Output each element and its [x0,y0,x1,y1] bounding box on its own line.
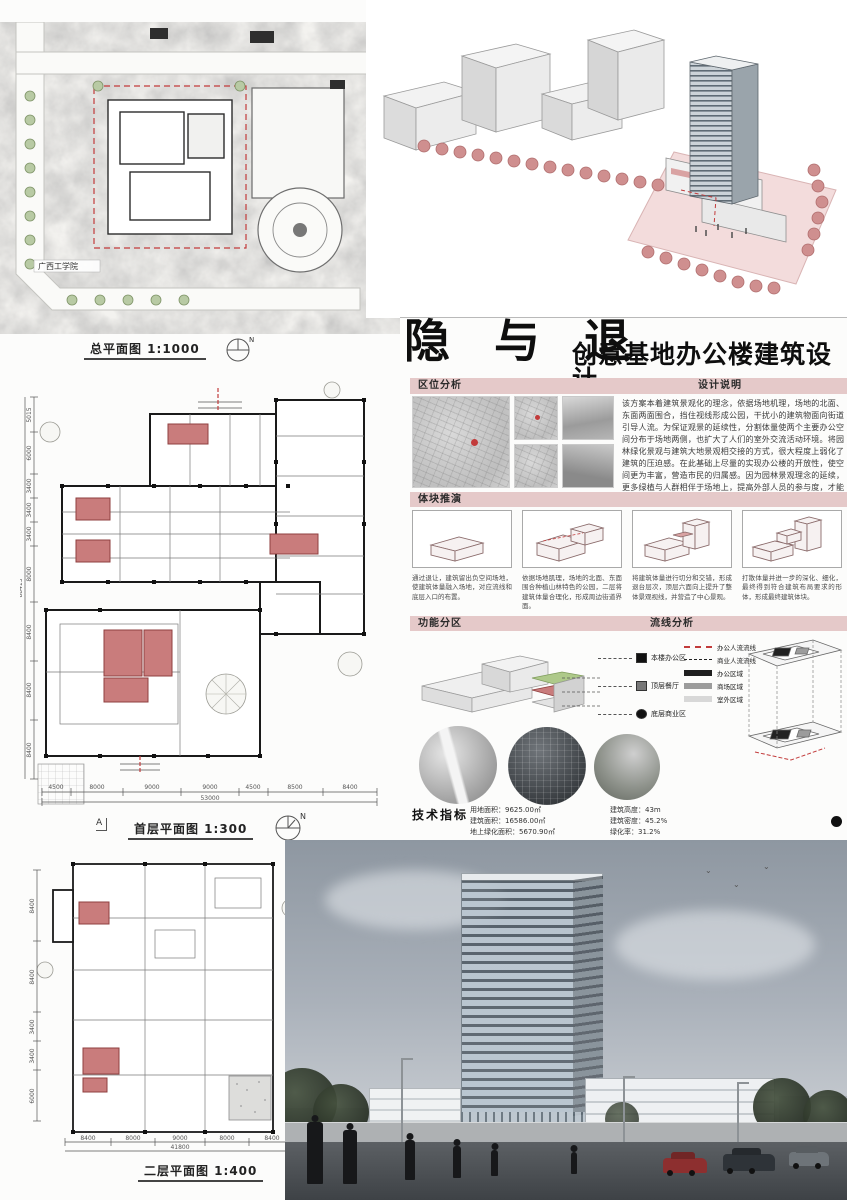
svg-text:8000: 8000 [26,566,33,581]
retail-flow-line-icon [684,659,712,660]
bird: ⌄ [705,866,712,875]
car-gray [789,1152,829,1166]
header-location-analysis: 区位分析 [418,378,462,394]
svg-text:88415: 88415 [20,578,24,597]
pedestrian [453,1146,461,1178]
pedestrian [571,1152,577,1174]
zoning-diagram [412,634,602,736]
road [285,1142,847,1200]
header-massing: 体块推演 [418,492,462,508]
second-floor-plan: 8400 8000 9000 8000 8400 41800 8400 8400… [25,850,325,1156]
svg-text:8400: 8400 [342,784,357,791]
location-map-small-2 [514,444,558,488]
first-floor-caption: 首层平面图 1:300 [128,818,253,837]
ground-retail-icon [636,709,647,719]
pedestrian [491,1150,498,1176]
indicator-site-area: 用地面积：9625.00㎡ [470,805,555,816]
location-map-large [412,396,510,488]
section-marker-a: A [96,818,107,831]
site-plan-caption: 总平面图 1:1000 [84,338,206,357]
massing-step-1 [412,510,512,568]
mall-zone-swatch [684,683,712,689]
svg-text:8400: 8400 [264,1135,279,1142]
design-description-text: 该方案本着建筑景观化的理念，依据场地机理，场地的北面、东面两面围合，挡住视线形成… [622,398,844,506]
svg-text:8400: 8400 [26,742,33,757]
indicator-green-rate: 绿化率：31.2% [610,827,709,838]
car-red [663,1158,707,1173]
svg-text:N: N [300,812,306,821]
indicator-green-area: 地上绿化面积：5670.90㎡ [470,827,555,838]
site-plan-label: 总平面图 1:1000 [84,342,206,360]
svg-text:3400: 3400 [29,1048,36,1063]
indicator-height: 建筑高度：43m [610,805,709,816]
site-photo-2 [562,444,614,488]
bird: ⌄ [733,880,740,889]
office-block-icon [636,653,647,663]
pedestrian [343,1130,357,1184]
pedestrian [405,1140,415,1180]
svg-text:8400: 8400 [26,624,33,639]
first-floor-label: 首层平面图 1:300 [128,822,253,840]
svg-text:53000: 53000 [200,795,219,802]
first-floor-plan: 4500 8000 9000 9000 4500 8500 8400 53000… [20,372,400,812]
indicator-density: 建筑密度：45.2% [610,816,709,827]
site-marker-dot [471,439,478,446]
banner-massing: 体块推演 [410,492,847,507]
site-marker-dot [535,415,540,420]
leader-line [598,686,632,687]
svg-text:8400: 8400 [29,969,36,984]
svg-text:8000: 8000 [125,1135,140,1142]
svg-text:8000: 8000 [219,1135,234,1142]
svg-text:N: N [249,336,254,344]
north-arrow-site: N [224,334,254,364]
site-photo-1 [562,396,614,440]
svg-text:8000: 8000 [89,784,104,791]
circulation-exploded-plans [735,626,847,796]
svg-text:6000: 6000 [29,1088,36,1103]
leader-line [598,714,632,715]
presentation-board: 广西工学院 总平面图 1:1000 N [0,0,847,1200]
header-circulation: 流线分析 [650,616,694,632]
office-zone-swatch [684,670,712,676]
svg-text:3400: 3400 [26,478,33,493]
massing-step-4 [742,510,842,568]
street-lamp [401,1058,403,1142]
detail-photo-bridge [419,726,497,804]
zoning-legend-item: 底层商业区 [598,706,708,722]
car-dark [723,1154,775,1171]
svg-text:3400: 3400 [26,526,33,541]
leader-line [598,658,632,659]
svg-text:8400: 8400 [26,682,33,697]
massing-step-2 [522,510,622,568]
svg-text:9000: 9000 [144,784,159,791]
svg-text:4500: 4500 [245,784,260,791]
indicator-floor-area: 建筑面积：16586.00㎡ [470,816,555,827]
second-floor-caption: 二层平面图 1:400 [138,1160,263,1179]
cloud [615,910,815,980]
detail-photo-facade [508,727,586,805]
svg-text:4500: 4500 [48,784,63,791]
massing-caption-3: 将建筑体量进行切分和交错，形成退台层次，顶层六面向上提升了整体景观视线，并营造了… [632,574,732,602]
axonometric-massing [366,0,847,318]
tower-front-facade [461,880,573,1112]
massing-caption-4: 打散体量并进一步的深化、细化，最终得到符合建筑布局要求的形体，形成最终建筑体块。 [742,574,842,602]
header-zoning: 功能分区 [418,616,462,632]
rooftop-restaurant-icon [636,681,647,691]
sidewalk [285,1122,847,1142]
header-design-description: 设计说明 [698,378,742,394]
outdoor-zone-swatch [684,696,712,702]
svg-text:8500: 8500 [287,784,302,791]
north-arrow-first-floor: N [273,810,307,844]
svg-text:9000: 9000 [172,1135,187,1142]
svg-text:8400: 8400 [29,898,36,913]
site-name-label: 广西工学院 [38,261,78,271]
svg-text:41800: 41800 [170,1144,189,1151]
svg-text:5015: 5015 [26,407,33,422]
banner-location-description: 区位分析 设计说明 [410,378,847,394]
street-lamp [623,1076,625,1142]
bird: ⌄ [763,862,770,871]
svg-text:6000: 6000 [26,445,33,460]
second-floor-label: 二层平面图 1:400 [138,1164,263,1182]
site-plan-drawing: 广西工学院 [0,22,400,334]
massing-caption-1: 通过退让，建筑留出负空间场地，使建筑体量融入场地，对应流线和底层入口的布置。 [412,574,512,602]
header-indicators: 技术指标 [412,806,468,823]
massing-caption-2: 依据场地肌理，场地的北面、东面围合种植山林特色的公园，二层将建筑体量合理化，形成… [522,574,622,612]
street-lamp [737,1082,739,1142]
massing-step-3 [632,510,732,568]
detail-photo-interior [594,734,660,800]
office-flow-line-icon [684,646,712,648]
svg-text:3400: 3400 [26,502,33,517]
svg-text:3400: 3400 [29,1019,36,1034]
page-dot [831,816,842,827]
svg-text:8400: 8400 [80,1135,95,1142]
svg-text:9000: 9000 [202,784,217,791]
location-map-small-1 [514,396,558,440]
pedestrian [307,1122,323,1184]
perspective-rendering: ⌄ ⌄ ⌄ [285,840,847,1200]
